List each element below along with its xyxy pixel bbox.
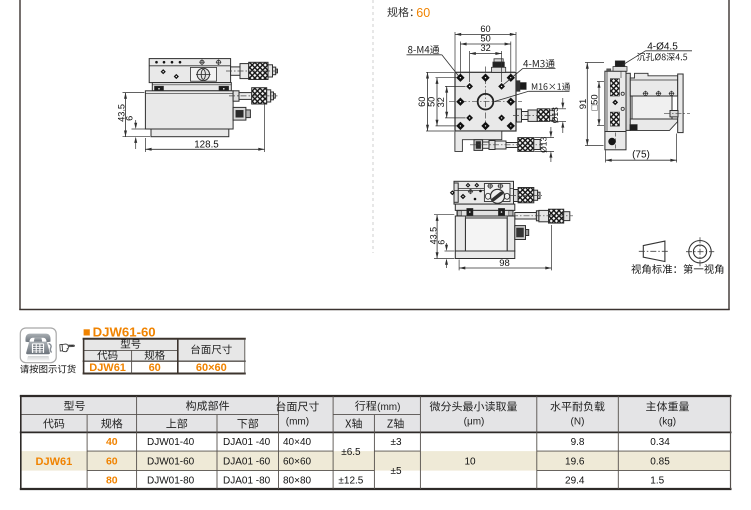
svg-text:60: 60: [480, 24, 490, 34]
svg-text:DJW61: DJW61: [89, 362, 126, 374]
svg-text:DJA01 -40: DJA01 -40: [223, 437, 271, 448]
svg-text:DJW01-80: DJW01-80: [147, 476, 195, 487]
svg-text:(75): (75): [632, 149, 650, 160]
svg-text:32: 32: [436, 97, 446, 107]
svg-text:60: 60: [106, 455, 118, 467]
svg-text:0.85: 0.85: [650, 456, 670, 467]
svg-text:91: 91: [578, 99, 589, 110]
svg-text:±5: ±5: [390, 466, 401, 477]
svg-text:±3: ±3: [390, 437, 401, 448]
svg-text:80: 80: [106, 475, 118, 487]
svg-text:60: 60: [149, 362, 161, 374]
svg-text:DJW61: DJW61: [36, 456, 73, 468]
svg-text:(kg): (kg): [659, 417, 676, 428]
svg-text:±12.5: ±12.5: [338, 476, 363, 487]
svg-text:19.6: 19.6: [565, 456, 585, 467]
svg-text:50: 50: [480, 34, 490, 44]
svg-text:(μm): (μm): [464, 417, 485, 428]
svg-text:10: 10: [464, 456, 476, 467]
svg-text:40: 40: [106, 436, 118, 448]
svg-text:Ø13: Ø13: [550, 107, 560, 123]
svg-text:DJA01 -80: DJA01 -80: [223, 476, 271, 487]
svg-text:6: 6: [124, 116, 134, 121]
svg-text:1.5: 1.5: [650, 476, 664, 487]
svg-text:0.34: 0.34: [650, 437, 670, 448]
svg-text:60: 60: [416, 6, 430, 20]
svg-text:DJW01-40: DJW01-40: [147, 437, 195, 448]
svg-text:□50: □50: [590, 94, 601, 110]
svg-text:80×80: 80×80: [283, 476, 312, 487]
svg-text:Ø13: Ø13: [539, 137, 549, 153]
svg-text:(mm): (mm): [286, 417, 309, 428]
svg-text:(mm): (mm): [377, 402, 400, 413]
svg-text:(N): (N): [571, 417, 585, 428]
svg-text:29.4: 29.4: [565, 476, 585, 487]
svg-text:98: 98: [499, 258, 510, 269]
svg-text:60×60: 60×60: [283, 456, 312, 467]
svg-text:50: 50: [427, 97, 437, 107]
svg-text:9.8: 9.8: [571, 437, 585, 448]
svg-text:32: 32: [480, 43, 490, 53]
svg-text:DJA01 -60: DJA01 -60: [223, 456, 271, 467]
svg-text:±6.5: ±6.5: [341, 447, 361, 458]
svg-text:DJW01-60: DJW01-60: [147, 456, 195, 467]
svg-text:60: 60: [417, 97, 427, 107]
svg-text:128.5: 128.5: [194, 140, 219, 151]
svg-text:40×40: 40×40: [283, 437, 312, 448]
svg-text:DJW61-60: DJW61-60: [93, 324, 156, 339]
svg-text:60×60: 60×60: [196, 362, 227, 374]
svg-text:6: 6: [436, 240, 446, 245]
